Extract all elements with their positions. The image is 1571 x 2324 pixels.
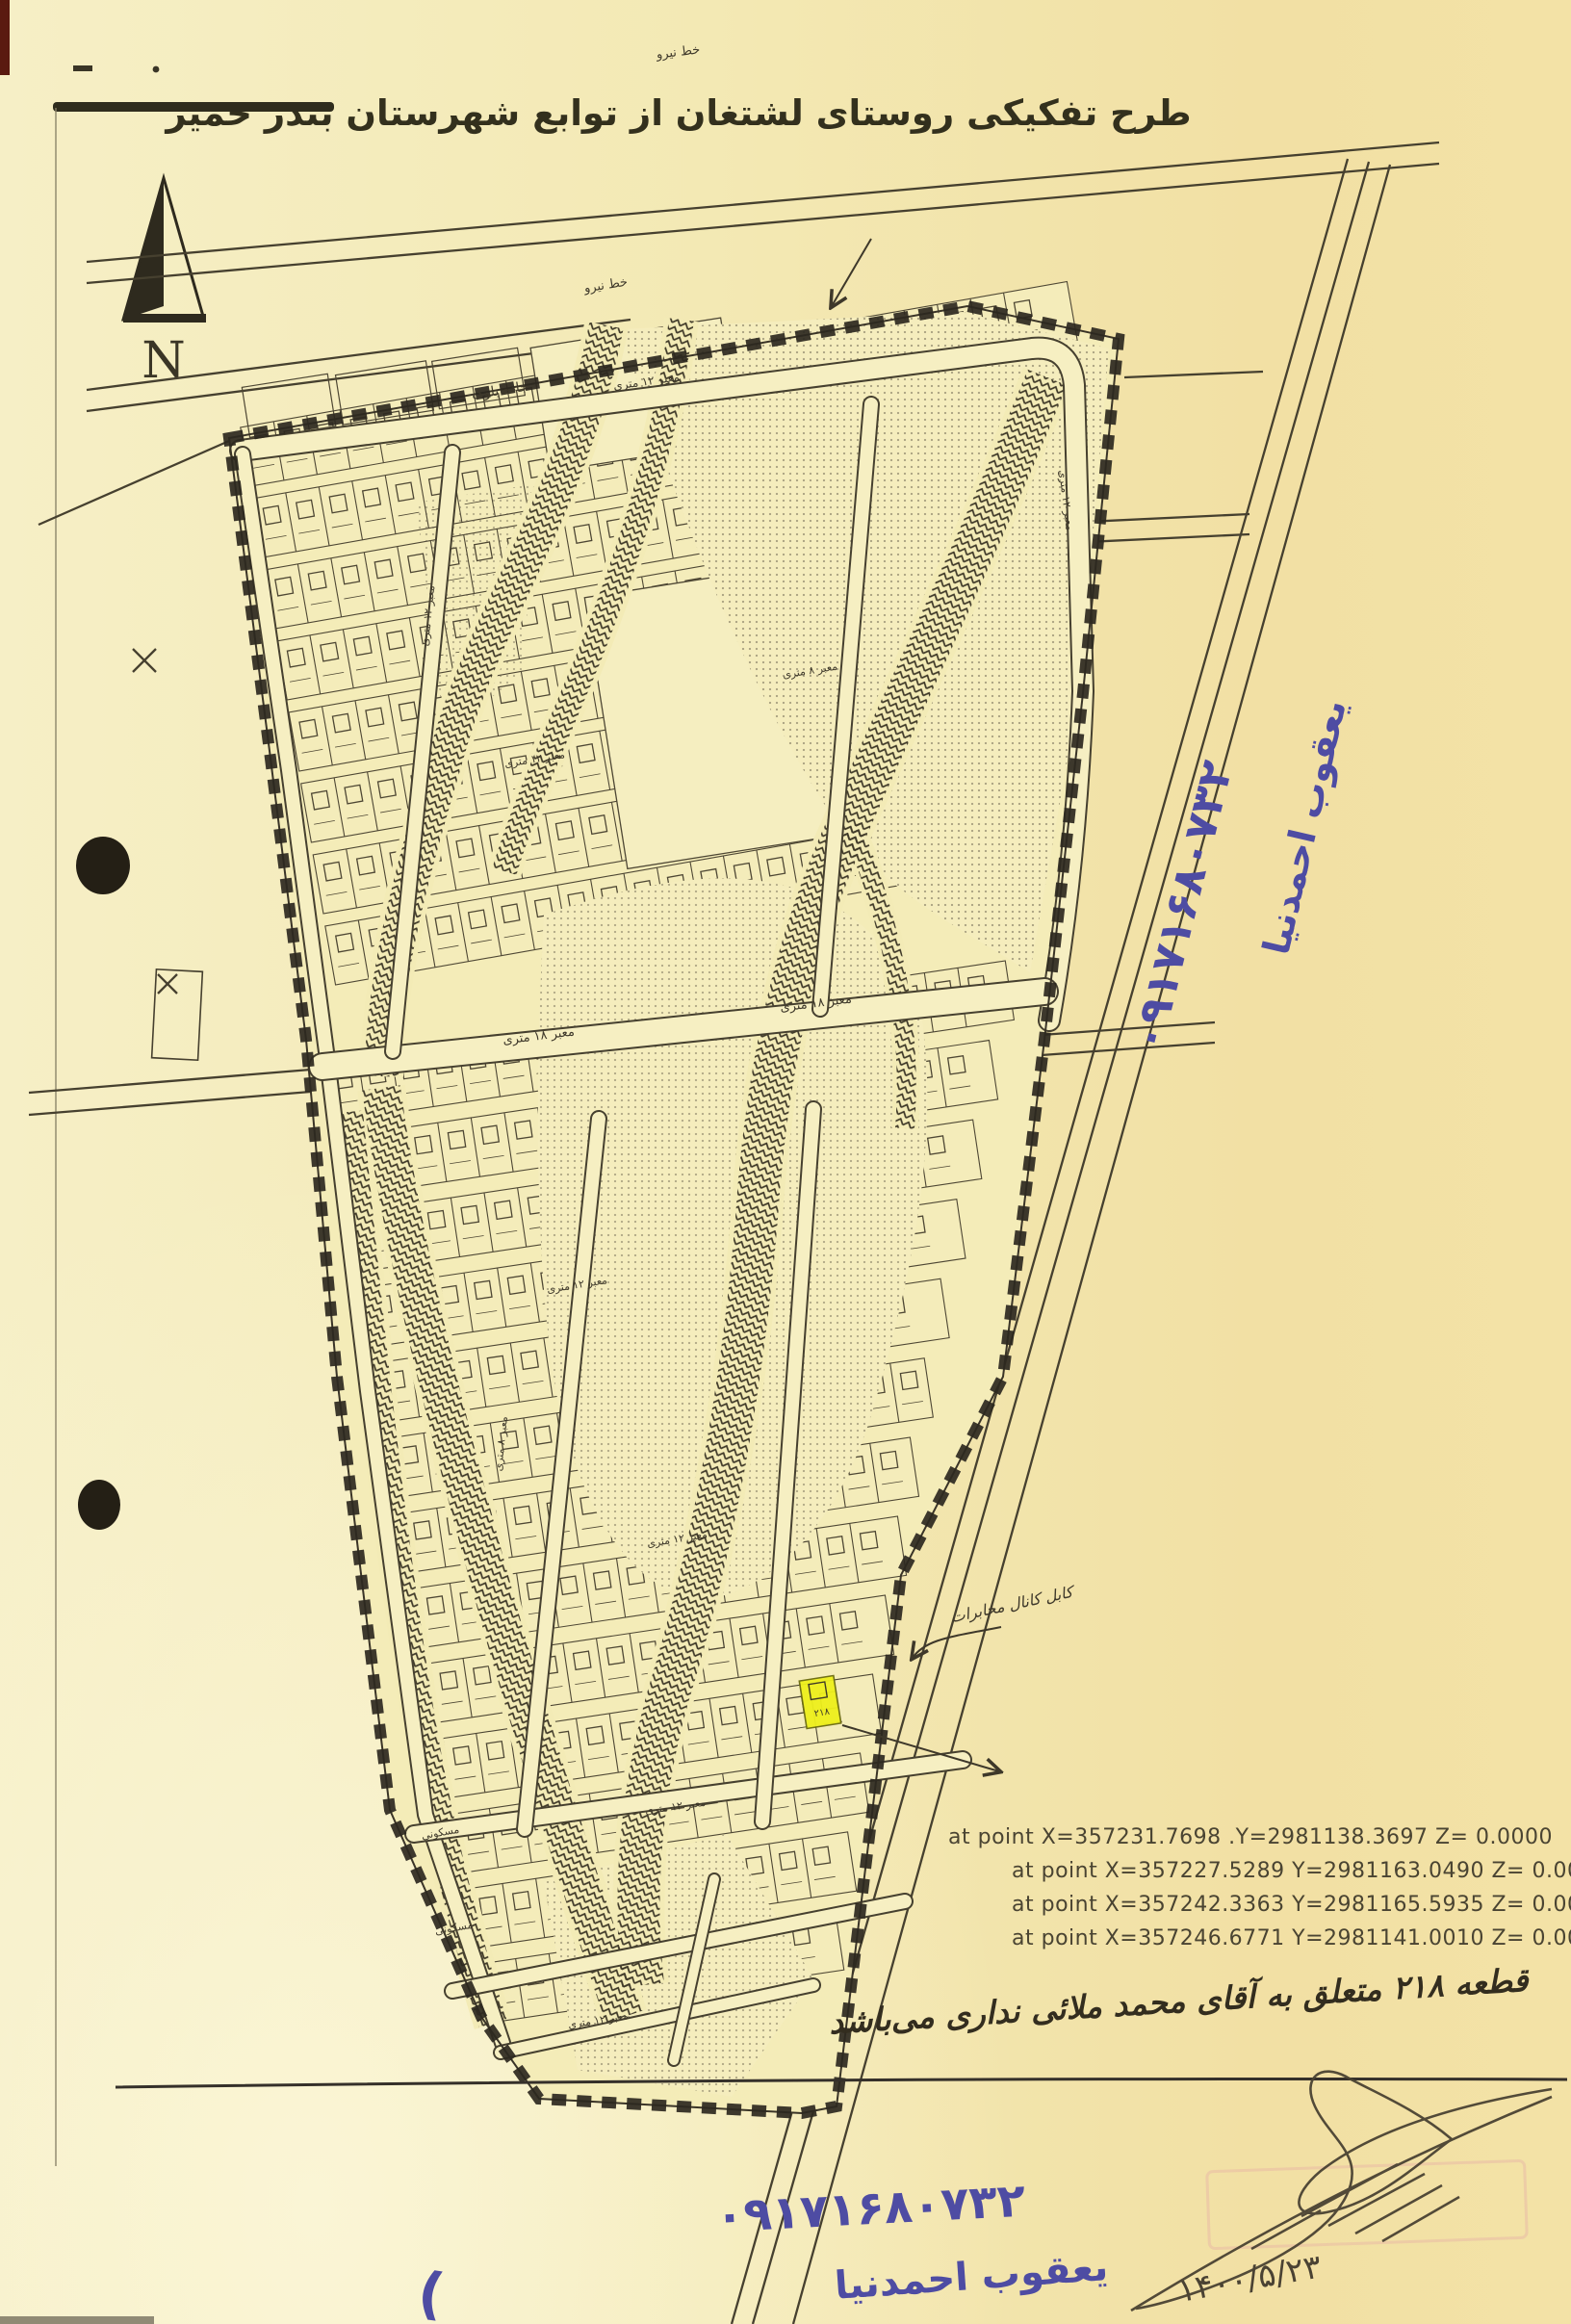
title-small-dot: [153, 66, 160, 73]
coordinate-line: at point X=357246.6771 Y=2981141.0010 Z=…: [1012, 1926, 1571, 1950]
highlighted-parcel: ۲۱۸: [799, 1675, 840, 1728]
hole-punch-bottom: [78, 1480, 120, 1530]
hole-punch-top: [76, 837, 130, 894]
scan-edge-artifact-bottom: [0, 2316, 154, 2324]
coordinate-line: at point X=357227.5289 Y=2981163.0490 Z=…: [1012, 1859, 1571, 1883]
scan-edge-artifact-top-left: [0, 0, 10, 75]
scanned-map-page: طرح تفکیکی روستای لشتغان از توابع شهرستا…: [0, 0, 1571, 2324]
title-small-dash: [73, 65, 92, 71]
coordinate-line: at point X=357242.3363 Y=2981165.5935 Z=…: [1012, 1893, 1571, 1917]
coordinate-line: at point X=357231.7698 .Y=2981138.3697 Z…: [948, 1825, 1553, 1849]
title-rule: [53, 102, 334, 112]
page-title: طرح تفکیکی روستای لشتغان از توابع شهرستا…: [164, 92, 1191, 134]
